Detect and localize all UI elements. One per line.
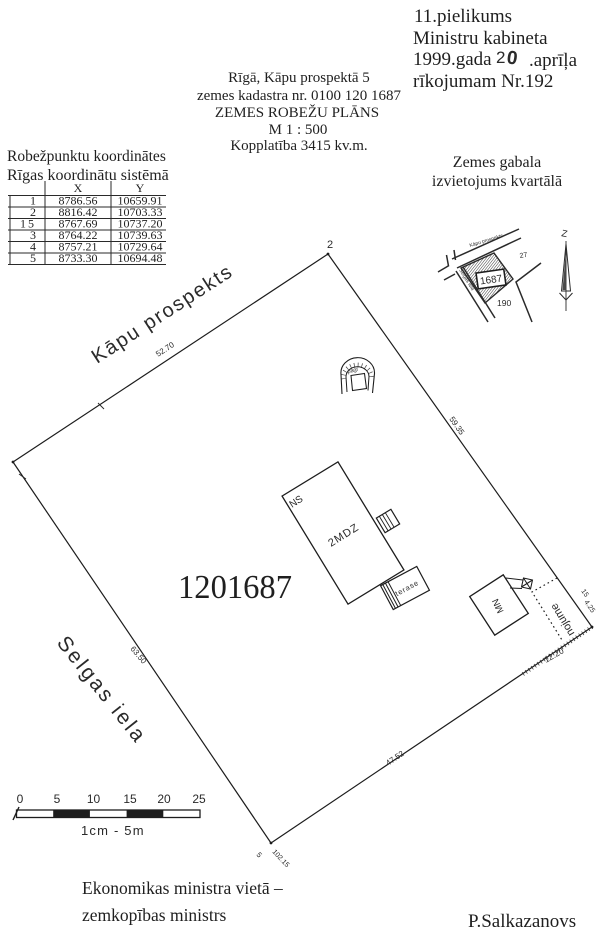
svg-text:Z: Z: [560, 228, 568, 240]
svg-text:Ekonomikas ministra vietā –: Ekonomikas ministra vietā –: [82, 878, 283, 898]
svg-text:5: 5: [54, 792, 61, 806]
svg-text:Kāpu prospekts: Kāpu prospekts: [469, 233, 504, 249]
svg-text:190: 190: [497, 298, 511, 308]
svg-text:Ministru kabineta: Ministru kabineta: [413, 28, 548, 49]
svg-text:1999.gada: 1999.gada: [413, 49, 492, 70]
svg-text:2: 2: [496, 48, 505, 67]
svg-text:2: 2: [327, 239, 333, 251]
svg-text:Rīgā, Kāpu prospektā 5: Rīgā, Kāpu prospektā 5: [228, 70, 370, 86]
svg-text:11.pielikums: 11.pielikums: [414, 6, 512, 27]
svg-text:izvietojums kvartālā: izvietojums kvartālā: [432, 173, 562, 190]
svg-text:15: 15: [579, 588, 589, 598]
svg-text:ZEMES ROBEŽU PLĀNS: ZEMES ROBEŽU PLĀNS: [215, 104, 379, 121]
svg-text:20: 20: [157, 792, 171, 806]
svg-text:zemkopības ministrs: zemkopības ministrs: [82, 905, 227, 925]
svg-text:47.52: 47.52: [384, 749, 406, 768]
svg-text:10: 10: [87, 792, 101, 806]
svg-text:nojume: nojume: [548, 601, 577, 638]
svg-text:5: 5: [255, 850, 264, 859]
svg-text:25: 25: [192, 792, 206, 806]
svg-text:63.50: 63.50: [128, 645, 148, 667]
svg-text:.aprīļa: .aprīļa: [529, 50, 578, 71]
svg-text:Rīgas koordinātu sistēmā: Rīgas koordinātu sistēmā: [7, 167, 169, 184]
svg-text:P.Salkazanovs: P.Salkazanovs: [468, 911, 576, 932]
svg-text:5: 5: [30, 251, 36, 265]
svg-text:4.25: 4.25: [582, 599, 596, 614]
svg-text:8733.30: 8733.30: [59, 251, 98, 265]
svg-text:0: 0: [505, 47, 518, 69]
svg-text:Zemes gabala: Zemes gabala: [453, 154, 541, 171]
svg-text:Robežpunktu koordinātes: Robežpunktu koordinātes: [7, 148, 166, 165]
svg-text:M 1 : 500: M 1 : 500: [269, 122, 328, 138]
svg-text:10694.48: 10694.48: [118, 251, 163, 265]
svg-text:0: 0: [17, 792, 24, 806]
svg-text:Kopplatība 3415 kv.m.: Kopplatība 3415 kv.m.: [230, 138, 367, 154]
svg-text:zemes kadastra nr. 0100 120 16: zemes kadastra nr. 0100 120 1687: [197, 88, 402, 104]
svg-text:rīkojumam Nr.192: rīkojumam Nr.192: [413, 71, 553, 92]
svg-text:1201687: 1201687: [178, 569, 292, 606]
svg-text:1cm - 5m: 1cm - 5m: [81, 823, 145, 838]
svg-text:27: 27: [519, 252, 528, 260]
svg-text:15: 15: [123, 792, 137, 806]
svg-text:102.15: 102.15: [271, 849, 291, 870]
